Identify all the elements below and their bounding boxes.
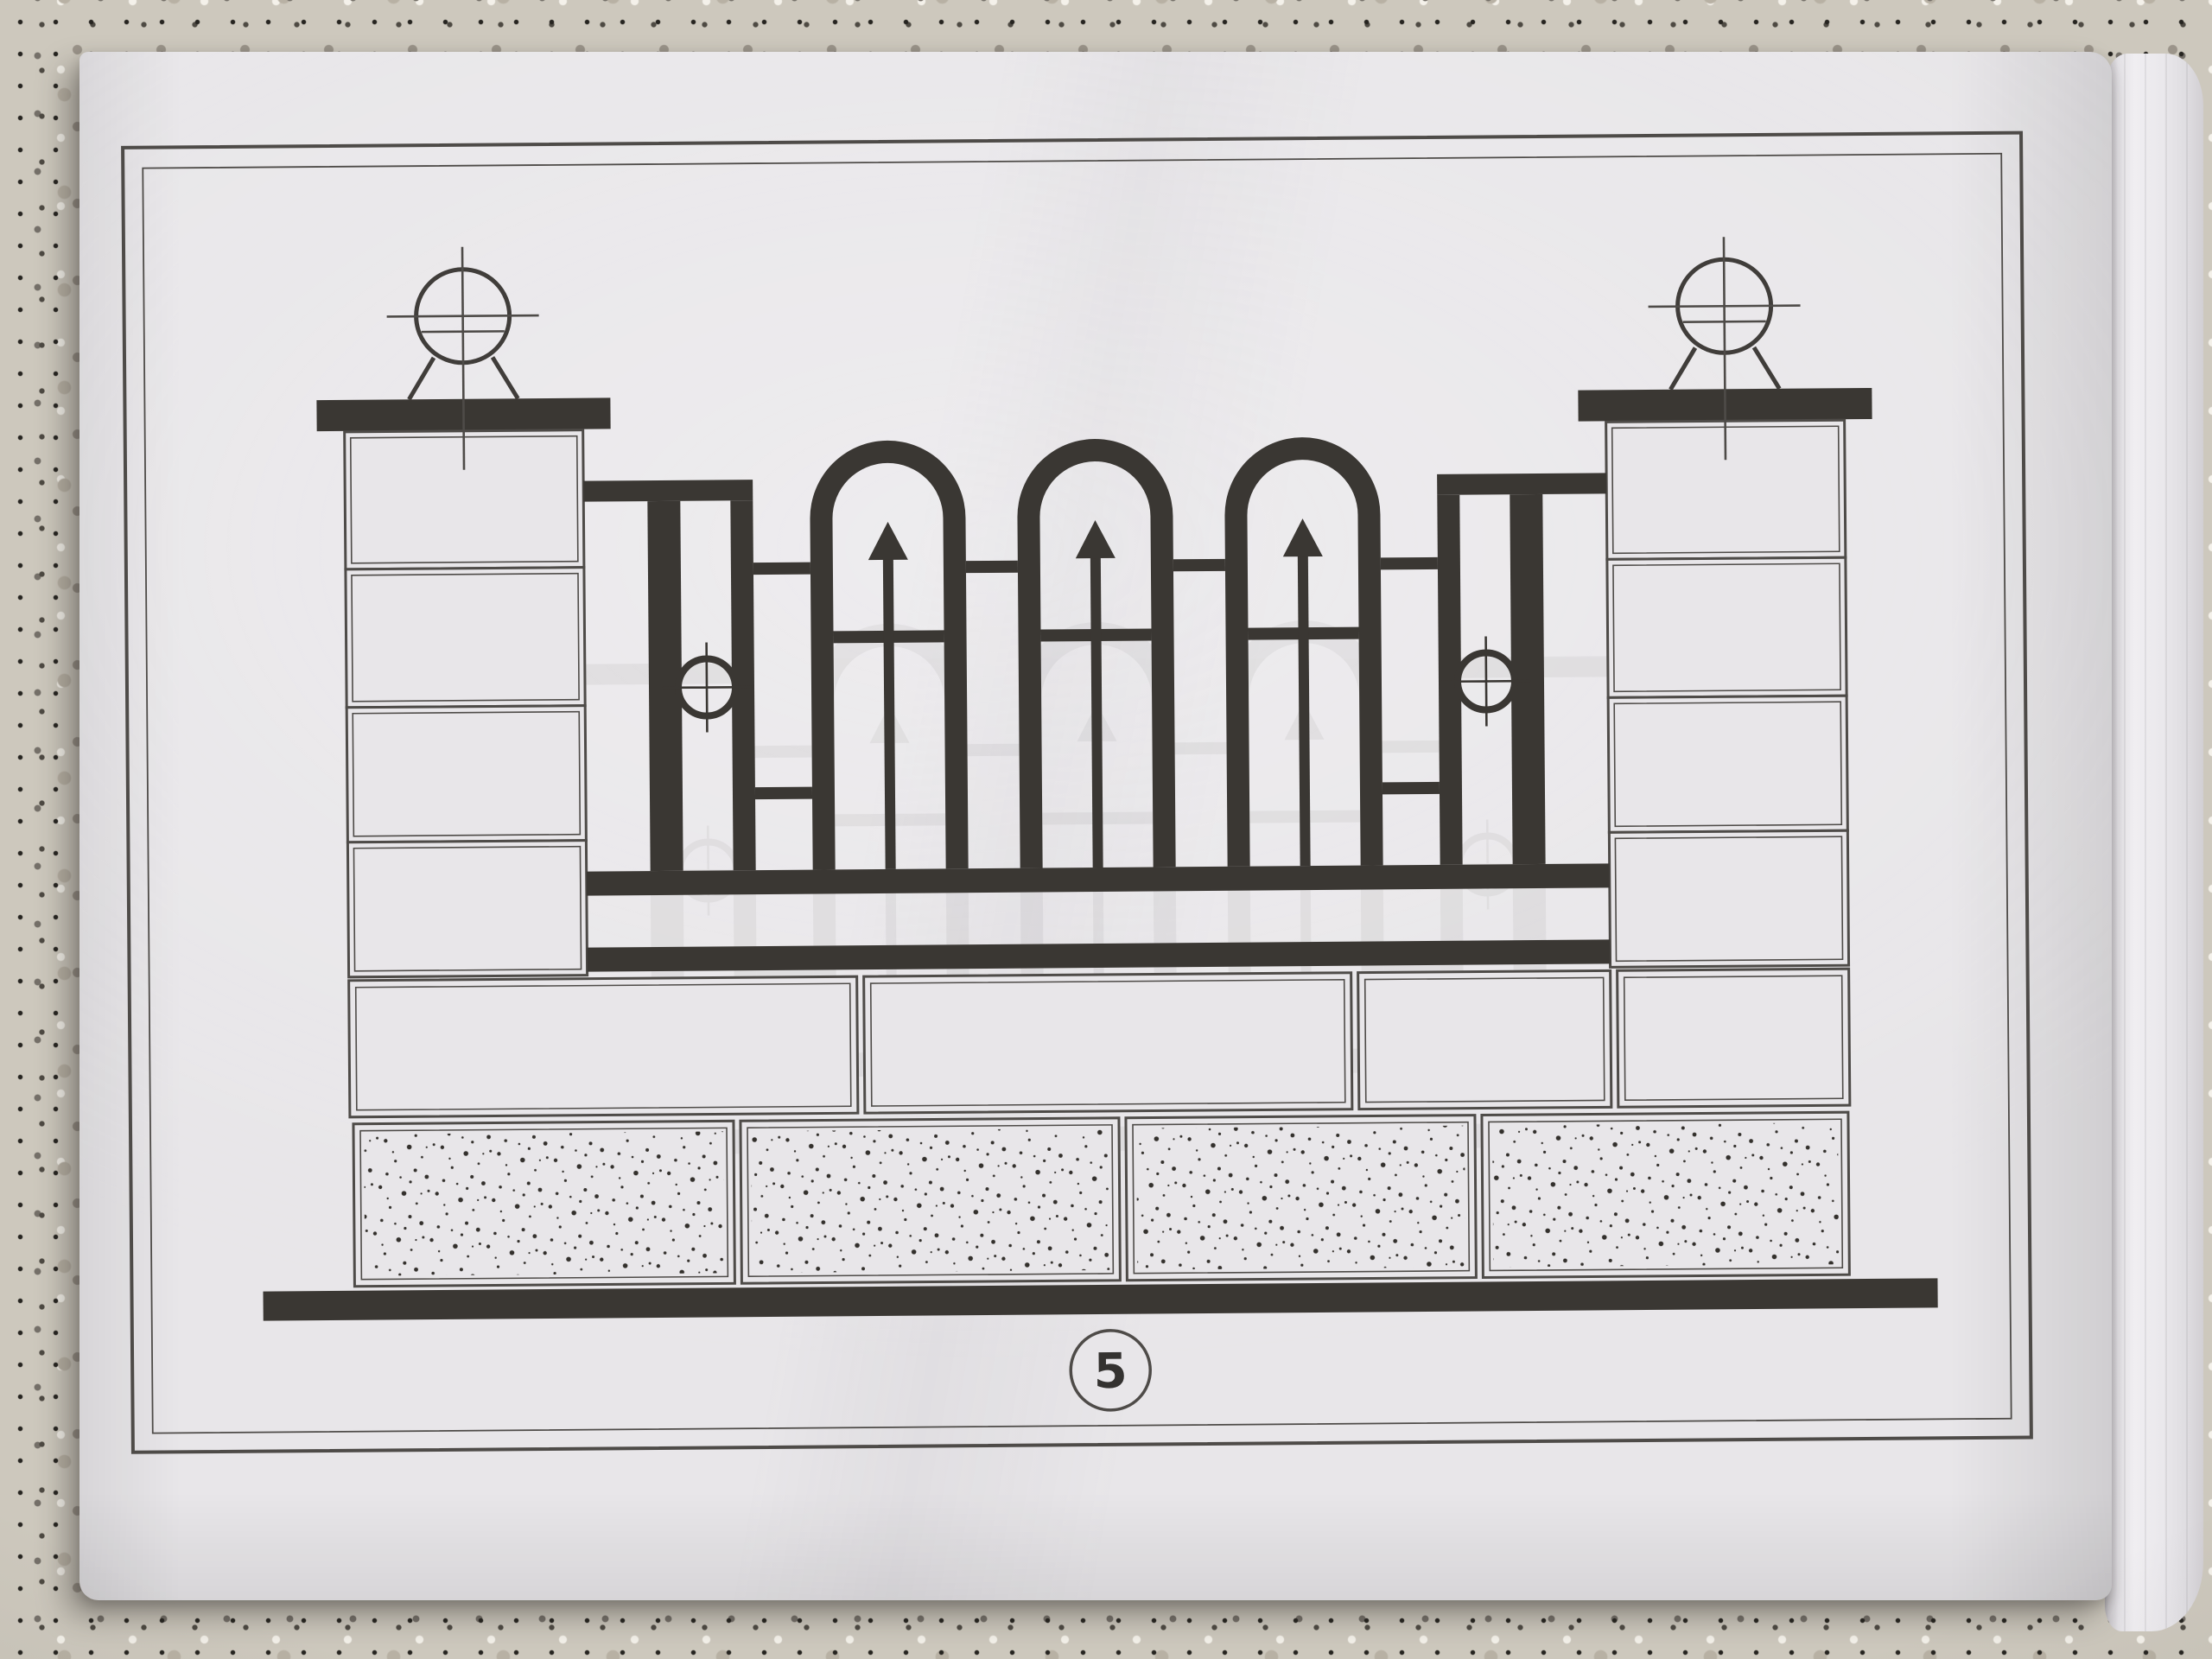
left-pillar bbox=[315, 245, 615, 977]
wall-stippled-course bbox=[353, 1112, 1849, 1287]
page-number: 5 bbox=[1094, 1344, 1128, 1400]
plate-content: 5 bbox=[123, 133, 2031, 1452]
right-pillar bbox=[1577, 236, 1877, 968]
photo-scene: 5 bbox=[0, 0, 2212, 1659]
fence-design-plate: 5 bbox=[0, 0, 2212, 1659]
page-number-badge: 5 bbox=[1071, 1331, 1151, 1411]
wall-plain-course bbox=[349, 969, 1850, 1117]
